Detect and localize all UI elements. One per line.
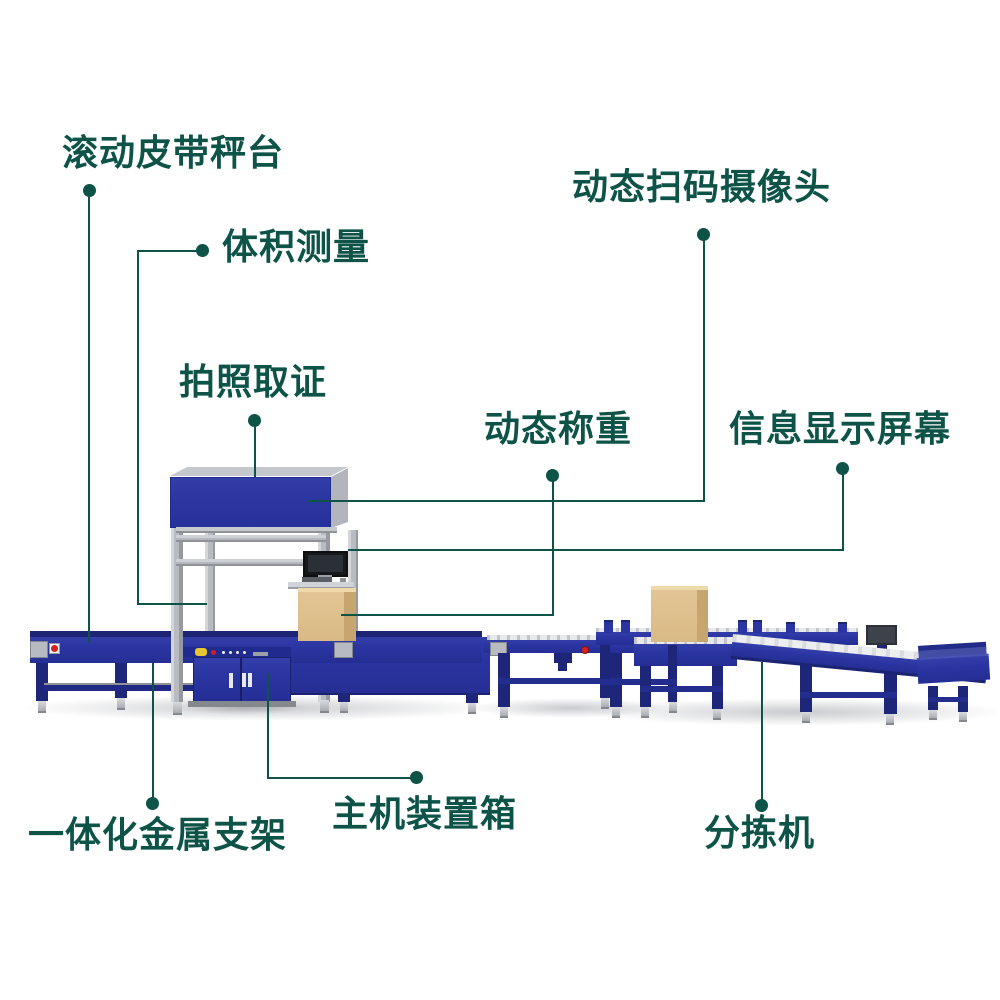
sorter-guide-tab bbox=[621, 620, 630, 633]
conveyor-leg bbox=[36, 663, 48, 701]
leg-foot bbox=[500, 707, 508, 718]
sorter-table bbox=[634, 644, 737, 666]
parcel-box bbox=[298, 592, 344, 641]
label-info-display-screen: 信息显示屏幕 bbox=[729, 410, 951, 450]
sorter-brace bbox=[800, 692, 897, 698]
end-tray bbox=[916, 642, 990, 686]
leg-foot bbox=[117, 698, 125, 710]
label-main-unit-cabinet: 主机装置箱 bbox=[332, 795, 517, 835]
leg-foot bbox=[886, 714, 894, 725]
gantry-leg bbox=[171, 528, 183, 702]
sorter-brace bbox=[640, 686, 723, 692]
leg-foot bbox=[929, 710, 937, 720]
leg-foot bbox=[340, 702, 348, 713]
label-volume-measurement: 体积测量 bbox=[222, 228, 370, 268]
end-tray-front bbox=[917, 654, 990, 684]
camera-housing bbox=[170, 477, 331, 528]
cabinet-red-button bbox=[211, 650, 216, 655]
sorter-brace bbox=[928, 697, 968, 702]
gantry-crossbar bbox=[176, 535, 326, 542]
diagram-canvas: 滚动皮带秤台 体积测量 拍照取证 动态扫码摄像头 动态称重 信息显示屏幕 一体化… bbox=[0, 0, 1000, 1000]
conveyor-leg bbox=[338, 693, 350, 702]
leg-foot bbox=[641, 707, 649, 718]
conveyor-leg bbox=[115, 663, 127, 698]
cabinet-door-handle bbox=[242, 673, 246, 687]
cabinet-indicator-light bbox=[229, 651, 232, 654]
emergency-stop-button-cap bbox=[51, 645, 58, 652]
conveyor-control-plate bbox=[30, 641, 48, 658]
leg-foot bbox=[669, 702, 677, 713]
leg-foot bbox=[320, 700, 329, 713]
cabinet-base bbox=[188, 701, 296, 707]
sorter-guide-tab bbox=[738, 620, 747, 633]
sorter-guide-tab bbox=[604, 620, 613, 633]
sorter-guide-tab bbox=[838, 622, 847, 633]
emergency-stop-button bbox=[581, 646, 589, 654]
camera-housing-flange bbox=[176, 527, 337, 533]
cabinet-yellow-button bbox=[195, 648, 207, 656]
label-dynamic-scan-camera: 动态扫码摄像头 bbox=[572, 168, 831, 208]
weighing-control-plate bbox=[334, 642, 353, 658]
cabinet-door-handle bbox=[229, 673, 233, 688]
conveyor-leg bbox=[466, 693, 478, 703]
leg-foot bbox=[173, 702, 182, 715]
sorter-display bbox=[866, 625, 897, 645]
label-integrated-metal-frame: 一体化金属支架 bbox=[28, 816, 287, 856]
camera-housing-side bbox=[331, 465, 349, 529]
leg-foot bbox=[959, 712, 967, 722]
leg-foot bbox=[612, 707, 620, 718]
cabinet-indicator-light bbox=[243, 651, 246, 654]
parcel-box-side bbox=[344, 592, 356, 641]
sorter-leg bbox=[600, 645, 610, 698]
gantry-leg bbox=[205, 530, 215, 638]
sensor-bracket bbox=[558, 662, 567, 671]
cabinet-indicator-light bbox=[222, 651, 225, 654]
camera-housing-top bbox=[170, 465, 349, 477]
label-rolling-belt-scale: 滚动皮带秤台 bbox=[62, 134, 284, 174]
cabinet-vent bbox=[253, 652, 268, 656]
sorter-brace bbox=[600, 679, 677, 685]
label-dynamic-weighing: 动态称重 bbox=[484, 410, 632, 450]
leg-foot bbox=[38, 701, 46, 713]
parcel-box bbox=[651, 590, 697, 642]
leg-foot bbox=[468, 703, 476, 714]
leg-foot bbox=[802, 712, 810, 723]
sorter-guide-tab bbox=[786, 622, 795, 633]
sorter-guide-tab bbox=[753, 620, 762, 633]
label-photo-capture: 拍照取证 bbox=[179, 363, 327, 403]
parcel-box-side bbox=[697, 590, 708, 642]
label-sorter: 分拣机 bbox=[704, 814, 815, 854]
cabinet-indicator-light bbox=[236, 651, 239, 654]
info-monitor-screen bbox=[308, 555, 343, 572]
leg-foot bbox=[601, 698, 609, 709]
sorter-leg bbox=[668, 645, 677, 702]
leg-foot bbox=[713, 709, 721, 720]
cabinet-door-handle bbox=[248, 673, 252, 687]
